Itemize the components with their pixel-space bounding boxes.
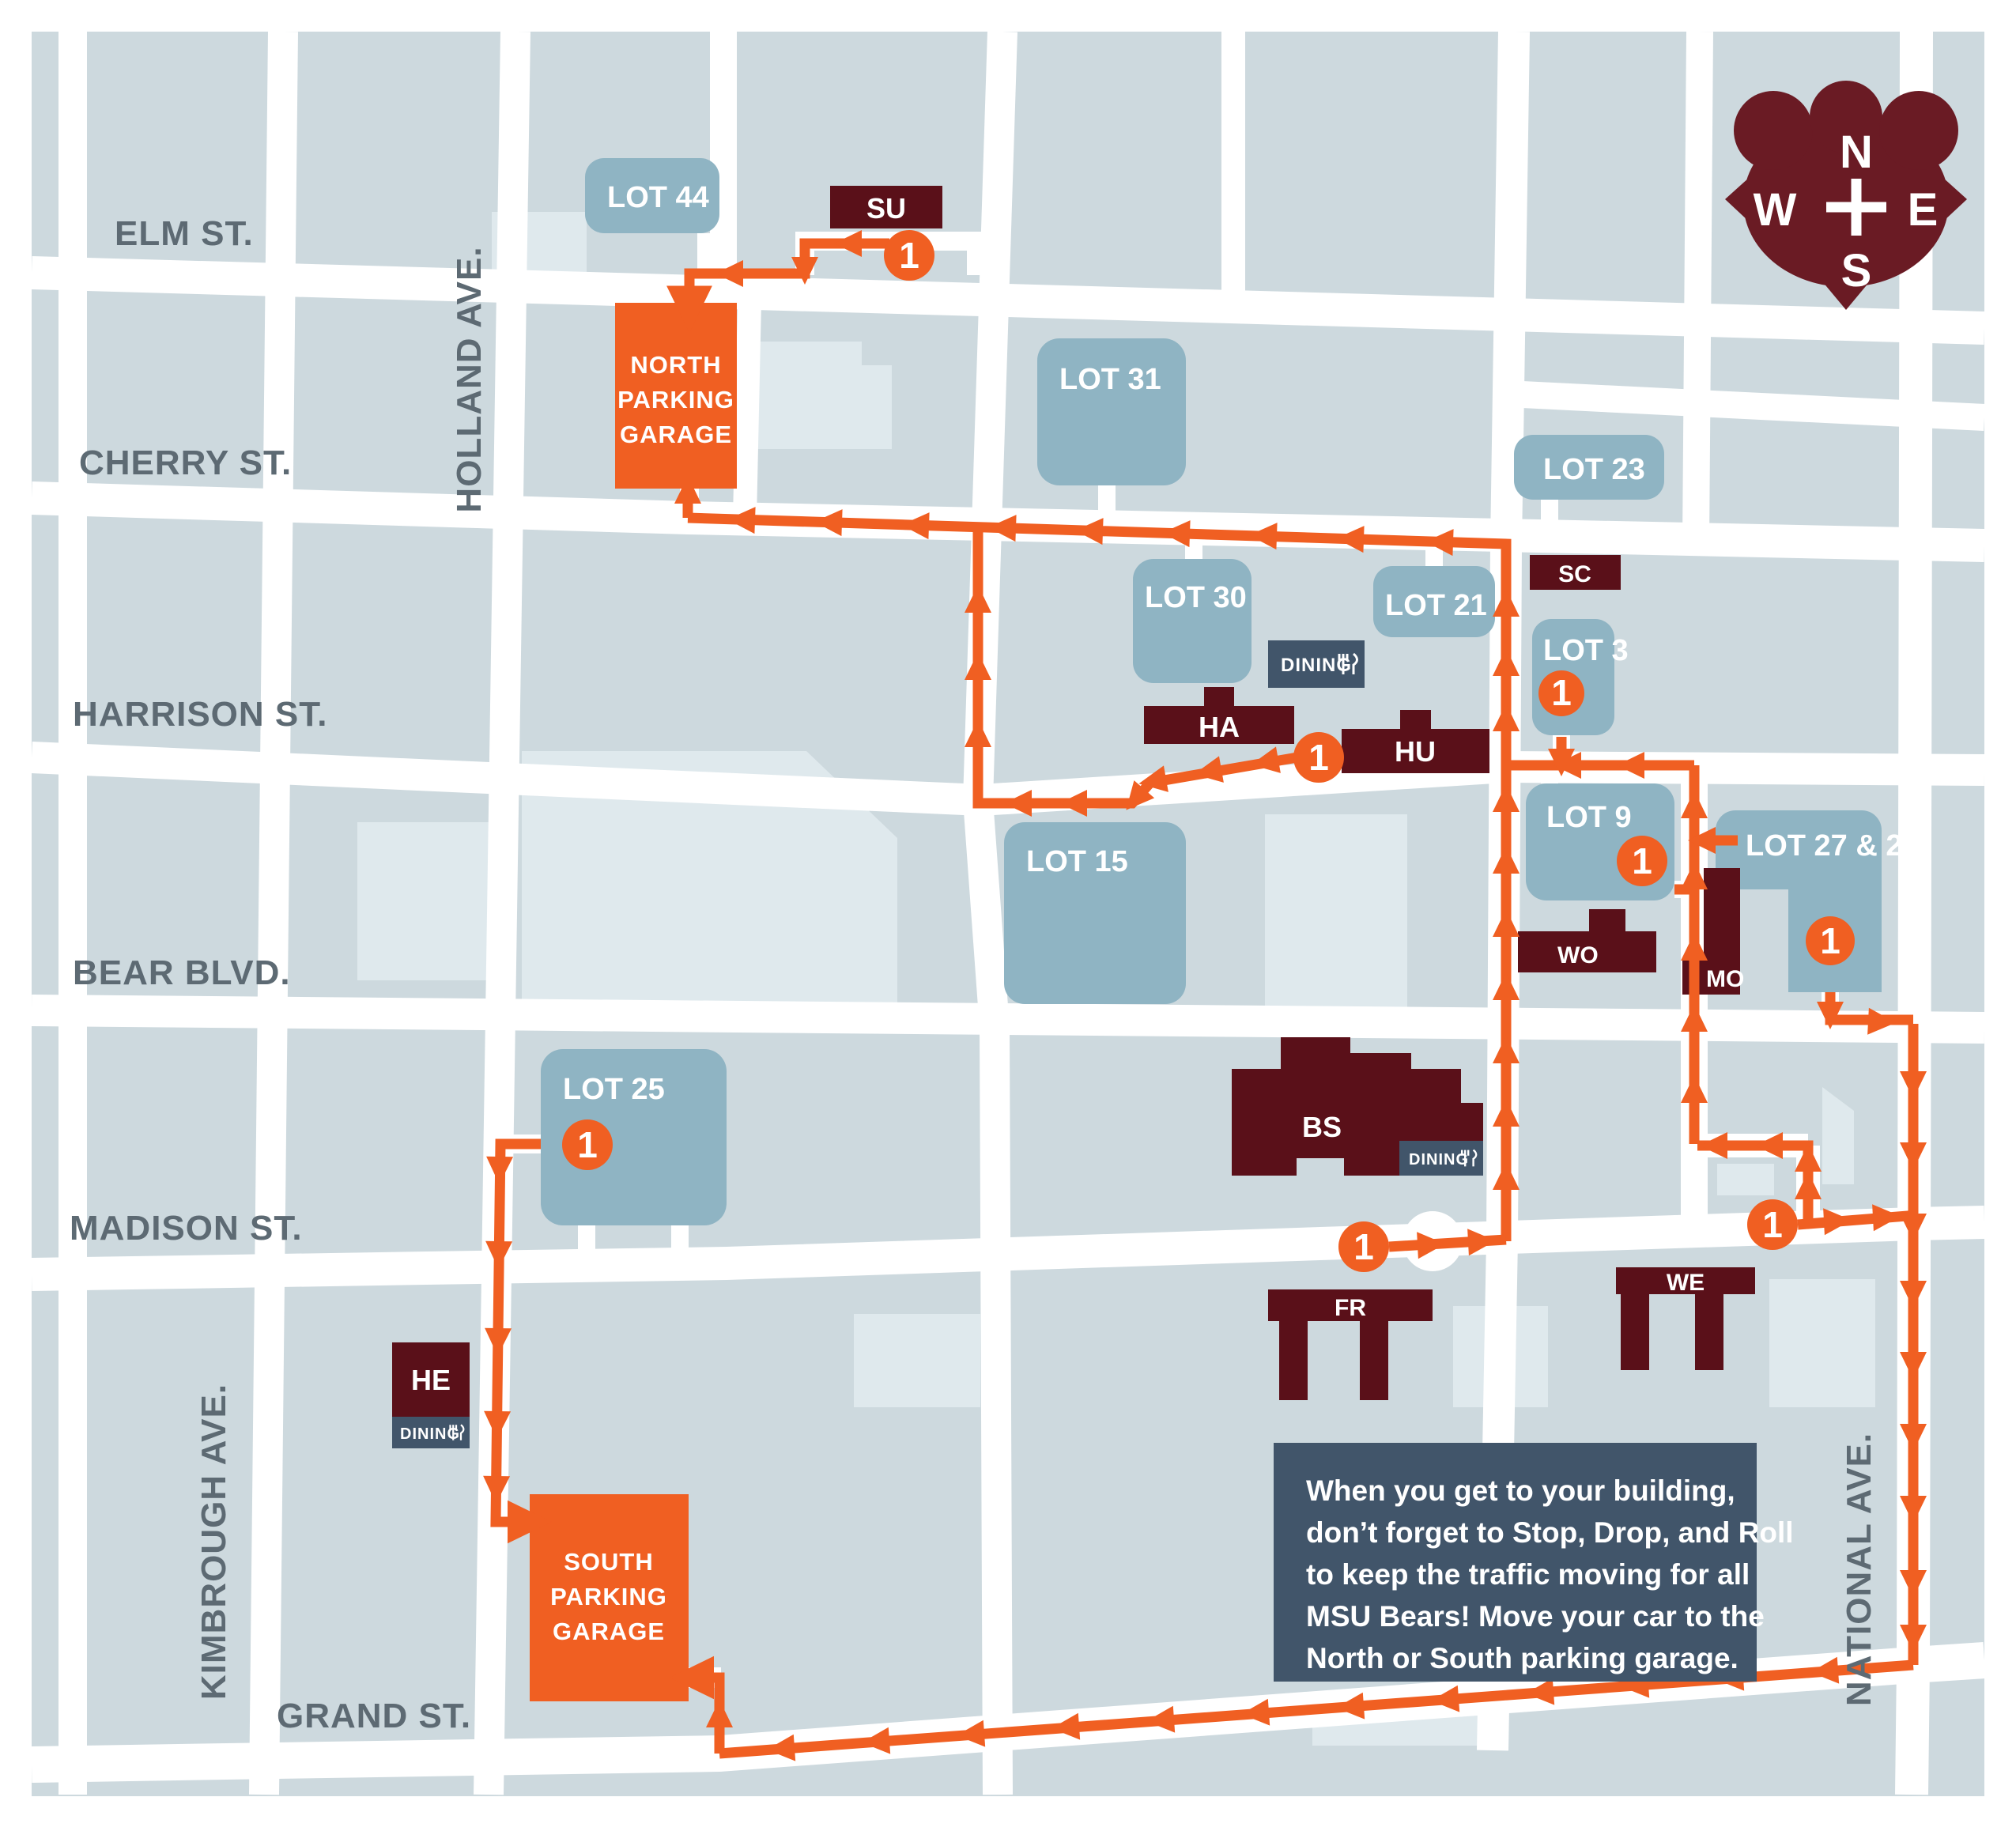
compass-n: N: [1840, 126, 1873, 178]
lot-3-label: LOT 3: [1543, 634, 1629, 667]
street-label-elm: ELM ST.: [115, 214, 254, 253]
compass-w: W: [1754, 184, 1797, 236]
dining-badge-ha: DINING: [1268, 640, 1365, 688]
lot-21-label: LOT 21: [1385, 589, 1487, 622]
building-we-label: WE: [1667, 1270, 1705, 1296]
footprint: [1265, 814, 1407, 1016]
street-vertical-b: [978, 32, 1002, 1795]
lot-15-label: LOT 15: [1026, 845, 1128, 878]
svg-text:1: 1: [1820, 920, 1840, 961]
lot-31: [1037, 338, 1186, 485]
compass-e: E: [1908, 184, 1939, 236]
info-box: When you get to your building, don’t for…: [1274, 1443, 1794, 1682]
lot-30: [1133, 559, 1252, 683]
building-sc-label: SC: [1558, 561, 1591, 587]
building-fr-label: FR: [1335, 1295, 1366, 1321]
street-label-kimbrough: KIMBROUGH AVE.: [194, 1384, 233, 1700]
dining-badge-he: DINING: [392, 1417, 470, 1448]
street-label-grand: GRAND ST.: [277, 1697, 471, 1735]
svg-text:1: 1: [1551, 672, 1572, 713]
footprint: [854, 1314, 980, 1407]
street-vertical-e: [1696, 32, 1700, 544]
footprint: [1769, 1279, 1875, 1407]
lot-27-29-label: LOT 27 & 29: [1746, 829, 1920, 863]
svg-text:1: 1: [577, 1124, 598, 1165]
south-garage-label-1: SOUTH: [564, 1548, 654, 1576]
building-mo-label: MO: [1706, 966, 1744, 992]
svg-text:1: 1: [1308, 737, 1329, 778]
street-label-national: NATIONAL AVE.: [1840, 1433, 1878, 1706]
building-bs-label: BS: [1302, 1111, 1342, 1143]
building-ha-label: HA: [1199, 711, 1240, 743]
marker-lot3: 1: [1538, 670, 1584, 716]
dining-badge-bs: DINING: [1399, 1141, 1483, 1176]
lot-25-label: LOT 25: [563, 1073, 665, 1106]
marker-su: 1: [884, 230, 934, 281]
marker-lot9: 1: [1617, 836, 1667, 886]
lot-23-label: LOT 23: [1543, 453, 1645, 486]
campus-parking-map: LOT 44 LOT 31 LOT 23 LOT 30 LOT 21 LOT 3…: [0, 0, 2016, 1831]
dining-badge-ha-label: DINING: [1281, 655, 1352, 676]
street-label-harrison: HARRISON ST.: [73, 695, 327, 734]
dining-badge-bs-label: DINING: [1409, 1151, 1469, 1168]
svg-text:1: 1: [1632, 840, 1652, 882]
street-label-holland: HOLLAND AVE.: [450, 246, 489, 512]
svg-text:1: 1: [1353, 1226, 1374, 1267]
info-line-3: to keep the traffic moving for all: [1306, 1558, 1750, 1591]
marker-madison-bs: 1: [1338, 1221, 1389, 1272]
marker-lot27-29: 1: [1806, 916, 1855, 965]
lot-9-label: LOT 9: [1546, 801, 1632, 834]
building-hu-label: HU: [1395, 735, 1436, 768]
info-line-2: don’t forget to Stop, Drop, and Roll: [1306, 1516, 1794, 1549]
north-garage-label-2: PARKING: [617, 386, 734, 413]
footprint: [357, 822, 506, 980]
building-he-label: HE: [411, 1364, 451, 1396]
lot-31-label: LOT 31: [1059, 363, 1161, 396]
street-label-bear: BEAR BLVD.: [73, 953, 291, 992]
south-garage-label-3: GARAGE: [553, 1618, 665, 1645]
marker-madison-east: 1: [1747, 1199, 1798, 1250]
south-garage-label-2: PARKING: [550, 1583, 667, 1610]
building-su-label: SU: [866, 192, 906, 225]
street-label-madison: MADISON ST.: [70, 1209, 303, 1248]
info-line-4: MSU Bears! Move your car to the: [1306, 1600, 1765, 1633]
svg-text:1: 1: [899, 235, 919, 276]
north-garage-label-1: NORTH: [630, 351, 721, 379]
compass-s: S: [1841, 245, 1872, 296]
building-wo-label: WO: [1557, 942, 1599, 968]
lot-30-label: LOT 30: [1145, 581, 1247, 614]
marker-lot25: 1: [562, 1119, 613, 1170]
lot-44-label: LOT 44: [607, 181, 709, 214]
map-canvas: LOT 44 LOT 31 LOT 23 LOT 30 LOT 21 LOT 3…: [0, 0, 2016, 1831]
info-line-1: When you get to your building,: [1306, 1474, 1735, 1507]
marker-ha: 1: [1293, 732, 1344, 783]
street-kimbrough: [264, 32, 283, 1795]
north-garage-label-3: GARAGE: [620, 421, 732, 448]
info-line-5: North or South parking garage.: [1306, 1642, 1739, 1674]
street-label-cherry: CHERRY ST.: [79, 444, 292, 482]
footprint: [1717, 1164, 1774, 1195]
street-vertical-a2: [745, 302, 749, 519]
svg-text:1: 1: [1762, 1204, 1783, 1245]
